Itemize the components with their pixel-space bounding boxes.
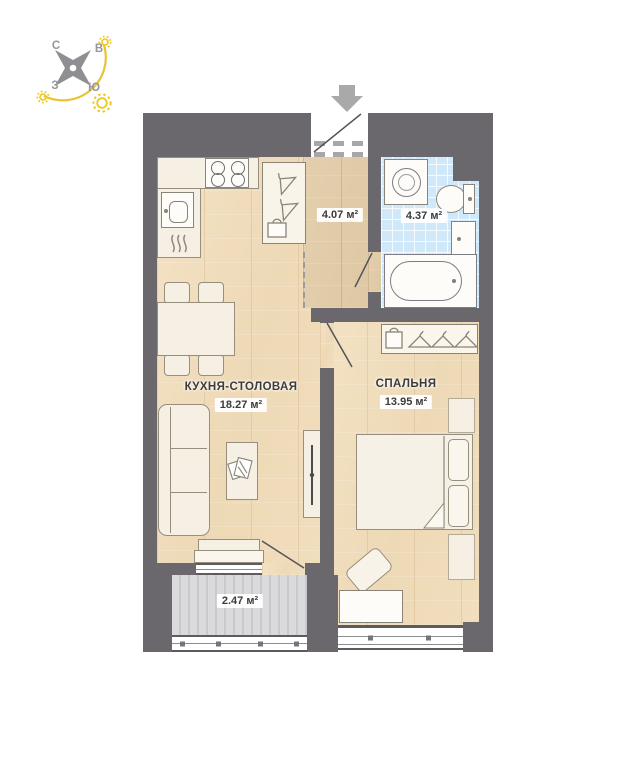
floor-plan: С В З Ю (0, 0, 639, 768)
wall-balcony-bedroom (307, 575, 338, 652)
balcony-area: 2.47 м² (217, 594, 263, 608)
entry-arrow-icon (331, 85, 363, 112)
bedroom-wardrobe (381, 324, 478, 354)
kitchen-living-name: КУХНЯ-СТОЛОВАЯ (185, 381, 298, 393)
open-plan-dashed-divider (303, 252, 305, 308)
tv-stand (303, 430, 321, 518)
compass-north-label: С (52, 40, 60, 52)
dining-chair (198, 282, 224, 304)
dining-chair (164, 354, 190, 376)
bedroom-area: 13.95 м² (380, 395, 432, 409)
dining-chair (198, 354, 224, 376)
sun-icon-large (93, 94, 110, 111)
wall-right (479, 157, 493, 652)
toilet-tank (463, 184, 475, 214)
nightstand (448, 534, 475, 580)
nightstand (448, 398, 475, 433)
bathroom-sink-icon (451, 221, 476, 257)
living-window (196, 563, 262, 575)
balcony-door-opening (262, 563, 305, 575)
bathroom-door-opening (368, 252, 381, 292)
dining-chair (164, 282, 190, 304)
hall-wardrobe (262, 162, 306, 244)
coffee-table (226, 442, 258, 500)
wall-mid-horizontal (311, 308, 479, 322)
compass-hub (69, 64, 77, 72)
bathtub-icon (384, 254, 477, 308)
bedroom-name: СПАЛЬНЯ (376, 378, 437, 390)
dining-table (157, 302, 235, 356)
compass-south-label: Ю (88, 82, 100, 94)
entry-threshold (314, 152, 365, 157)
sofa (158, 404, 210, 536)
bedroom-door-opening (320, 323, 334, 368)
balcony-glazing (172, 635, 307, 652)
hall-area: 4.07 м² (317, 208, 363, 222)
washing-machine-icon (384, 159, 428, 205)
pillow (448, 439, 469, 481)
wall-bathroom-notch (453, 157, 479, 181)
entry-threshold (314, 141, 365, 146)
entry-opening (311, 113, 368, 157)
compass-west-label: З (51, 80, 58, 92)
kitchen-sink-icon (161, 192, 194, 228)
desk (339, 590, 403, 623)
kitchen-living-area: 18.27 м² (215, 398, 267, 412)
compass-east-label: В (95, 43, 103, 55)
compass-icon (22, 18, 137, 123)
wall-left-balcony (143, 563, 172, 652)
window-sill (194, 550, 264, 563)
wall-left (143, 157, 157, 577)
bathroom-area: 4.37 м² (401, 209, 447, 223)
stove-icon (205, 158, 249, 188)
pillow (448, 485, 469, 527)
wall-bedroom-corner (463, 622, 493, 652)
bedroom-window (338, 625, 463, 650)
